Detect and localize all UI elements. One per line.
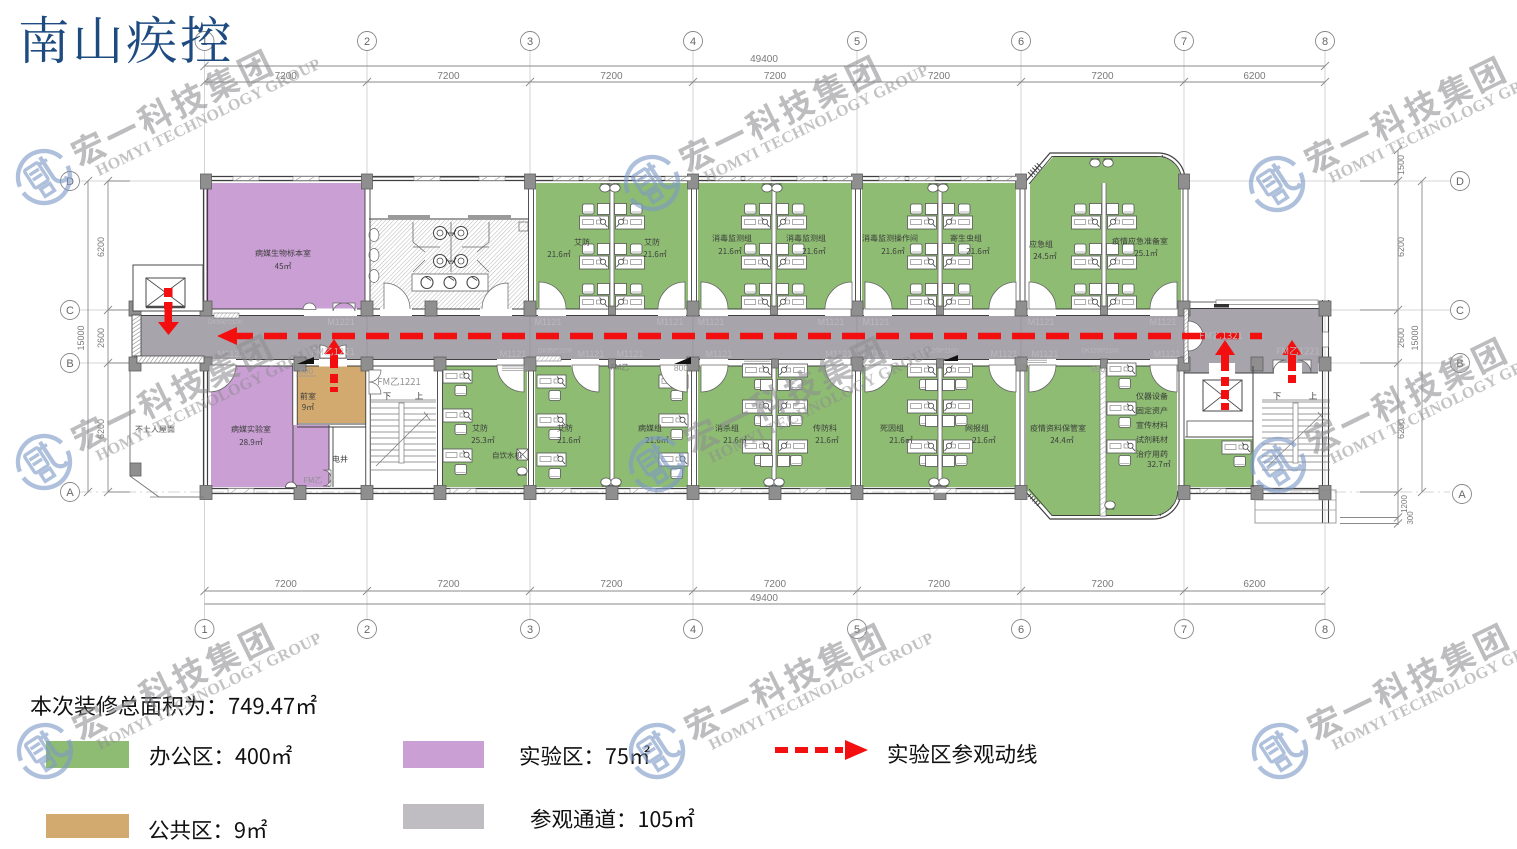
svg-text:C: C (1456, 305, 1464, 317)
svg-text:B: B (66, 358, 73, 370)
svg-text:M1121: M1121 (1028, 317, 1055, 327)
svg-text:6200: 6200 (1243, 579, 1266, 590)
svg-text:15000: 15000 (1410, 325, 1420, 350)
svg-text:DK1200*2100: DK1200*2100 (1081, 349, 1119, 355)
svg-text:6: 6 (1018, 36, 1024, 48)
svg-text:7: 7 (1181, 36, 1187, 48)
svg-text:49400: 49400 (750, 593, 778, 604)
svg-text:M1121: M1121 (863, 317, 890, 327)
svg-text:15000: 15000 (76, 325, 86, 350)
svg-text:1: 1 (201, 624, 207, 636)
svg-text:7200: 7200 (1091, 71, 1114, 82)
svg-text:M1121: M1121 (535, 317, 562, 327)
svg-text:1500: 1500 (1396, 155, 1406, 175)
svg-text:650: 650 (1091, 364, 1105, 374)
svg-text:2600: 2600 (1396, 328, 1406, 348)
svg-text:7200: 7200 (600, 71, 623, 82)
svg-text:3: 3 (527, 36, 533, 48)
svg-text:6200: 6200 (1396, 237, 1406, 257)
svg-text:M1121: M1121 (1150, 317, 1177, 327)
svg-text:2: 2 (364, 624, 370, 636)
svg-text:M1121: M1121 (500, 349, 527, 359)
svg-text:M1121: M1121 (617, 349, 644, 359)
svg-text:M1121: M1121 (698, 317, 725, 327)
svg-text:4: 4 (690, 36, 696, 48)
svg-text:2600: 2600 (96, 328, 106, 348)
svg-text:M1221: M1221 (327, 317, 355, 327)
svg-text:800: 800 (299, 366, 313, 376)
svg-text:7200: 7200 (437, 579, 460, 590)
svg-text:7200: 7200 (928, 579, 951, 590)
svg-text:M1121: M1121 (818, 317, 845, 327)
svg-text:7200: 7200 (764, 579, 787, 590)
svg-text:8: 8 (1322, 36, 1328, 48)
svg-text:2: 2 (364, 36, 370, 48)
svg-text:6200: 6200 (1243, 71, 1266, 82)
svg-text:300: 300 (1406, 511, 1415, 525)
svg-text:49400: 49400 (750, 54, 778, 65)
svg-text:5: 5 (854, 36, 860, 48)
svg-text:DK950*2100: DK950*2100 (208, 320, 243, 326)
svg-text:7: 7 (1181, 624, 1187, 636)
svg-text:A: A (1458, 489, 1466, 501)
svg-text:M1121: M1121 (706, 349, 733, 359)
svg-text:7200: 7200 (437, 71, 460, 82)
svg-text:DK950*2100: DK950*2100 (538, 349, 573, 355)
svg-text:1200: 1200 (1400, 495, 1409, 513)
svg-text:7200: 7200 (1091, 579, 1114, 590)
svg-text:M1121: M1121 (991, 349, 1018, 359)
svg-text:800: 800 (674, 363, 688, 373)
svg-text:6200: 6200 (96, 237, 106, 257)
svg-text:M1121: M1121 (657, 317, 684, 327)
svg-text:6: 6 (1018, 624, 1024, 636)
svg-text:C: C (66, 305, 74, 317)
svg-text:8: 8 (1322, 624, 1328, 636)
svg-text:M1121: M1121 (1032, 349, 1059, 359)
svg-text:7200: 7200 (764, 71, 787, 82)
svg-text:M1121: M1121 (1154, 349, 1181, 359)
svg-text:3: 3 (527, 624, 533, 636)
svg-text:7200: 7200 (600, 579, 623, 590)
svg-text:4: 4 (690, 624, 696, 636)
svg-text:7200: 7200 (275, 579, 298, 590)
svg-text:A: A (66, 487, 74, 499)
svg-text:D: D (1456, 176, 1464, 188)
svg-text:M1121: M1121 (578, 349, 605, 359)
